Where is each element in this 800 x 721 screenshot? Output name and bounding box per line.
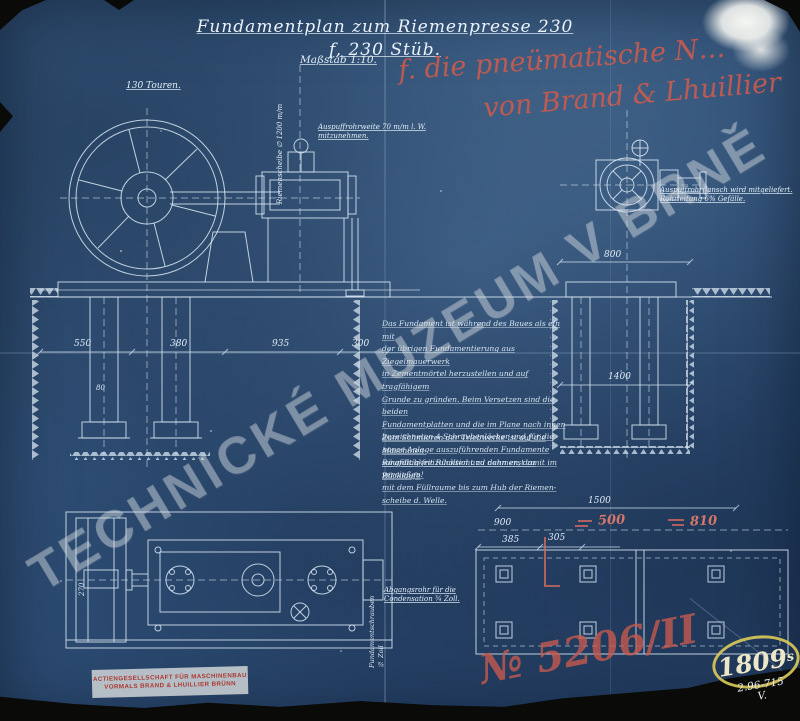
blueprint-sheet: Fundamentplan zum Riemenpresse 230 f, 23… — [0, 0, 800, 721]
torn-edge-nick — [104, 0, 134, 10]
factory-stamp: ACTIENGESELLSCHAFT FÜR MASCHINENBAU VORM… — [92, 666, 249, 698]
torn-corner-top-left — [0, 0, 50, 32]
inventory-number-suffix: s — [786, 649, 796, 665]
torn-corner-top-right — [760, 0, 800, 32]
torn-edge-nick — [0, 102, 13, 132]
